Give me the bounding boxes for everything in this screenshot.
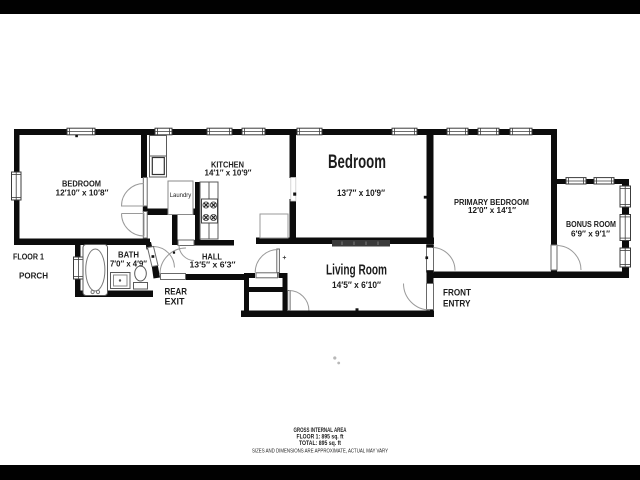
- svg-text:REAR: REAR: [165, 287, 188, 297]
- svg-text:PORCH: PORCH: [19, 272, 48, 281]
- svg-text:12′0″ x 14′1″: 12′0″ x 14′1″: [468, 206, 516, 215]
- svg-text:Laundry: Laundry: [170, 192, 192, 199]
- svg-text:TOTAL: 895 sq. ft: TOTAL: 895 sq. ft: [299, 441, 341, 447]
- svg-text:14′1″ x 10′9″: 14′1″ x 10′9″: [205, 169, 252, 178]
- svg-text:BATH: BATH: [118, 251, 139, 260]
- svg-text:BEDROOM: BEDROOM: [62, 180, 101, 189]
- svg-text:13′5″ x 6′3″: 13′5″ x 6′3″: [190, 261, 236, 270]
- svg-text:7′0″ x 4′9″: 7′0″ x 4′9″: [110, 260, 147, 269]
- svg-text:BONUS ROOM: BONUS ROOM: [566, 220, 616, 229]
- svg-text:13′7″ x 10′9″: 13′7″ x 10′9″: [337, 188, 386, 198]
- svg-text:EXIT: EXIT: [165, 297, 185, 307]
- svg-text:14′5″ x 6′10″: 14′5″ x 6′10″: [332, 280, 382, 290]
- svg-text:GROSS INTERNAL AREA: GROSS INTERNAL AREA: [294, 428, 347, 434]
- svg-text:Bedroom: Bedroom: [328, 152, 386, 173]
- svg-text:FLOOR 1: 895 sq. ft: FLOOR 1: 895 sq. ft: [297, 435, 344, 441]
- svg-text:FLOOR 1: FLOOR 1: [13, 253, 44, 262]
- svg-text:ENTRY: ENTRY: [443, 299, 471, 309]
- svg-text:Living Room: Living Room: [326, 263, 387, 279]
- svg-text:SIZES AND DIMENSIONS ARE APPRO: SIZES AND DIMENSIONS ARE APPROXIMATE, AC…: [252, 449, 388, 455]
- svg-text:6′9″ x 9′1″: 6′9″ x 9′1″: [571, 230, 610, 239]
- svg-text:12′10″ x 10′8″: 12′10″ x 10′8″: [56, 189, 109, 198]
- svg-text:FRONT: FRONT: [443, 288, 471, 298]
